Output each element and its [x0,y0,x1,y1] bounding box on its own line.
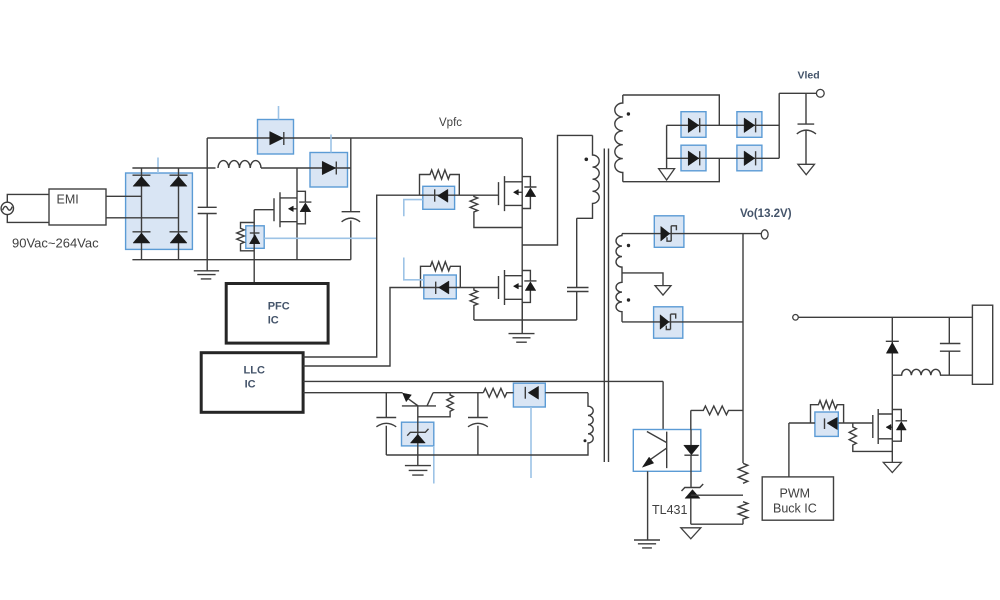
svg-text:IC: IC [268,315,279,327]
svg-text:90Vac~264Vac: 90Vac~264Vac [12,236,99,251]
svg-text:Vpfc: Vpfc [439,117,462,129]
svg-text:PWM: PWM [780,487,811,501]
svg-text:LLC: LLC [244,364,265,376]
svg-text:EMI: EMI [57,193,79,207]
svg-text:IC: IC [245,378,256,390]
svg-text:TL431: TL431 [652,503,687,517]
svg-text:Vo(13.2V): Vo(13.2V) [740,208,792,220]
svg-text:Buck IC: Buck IC [773,502,817,516]
svg-text:Vled: Vled [798,70,820,82]
svg-text:PFC: PFC [268,301,290,313]
